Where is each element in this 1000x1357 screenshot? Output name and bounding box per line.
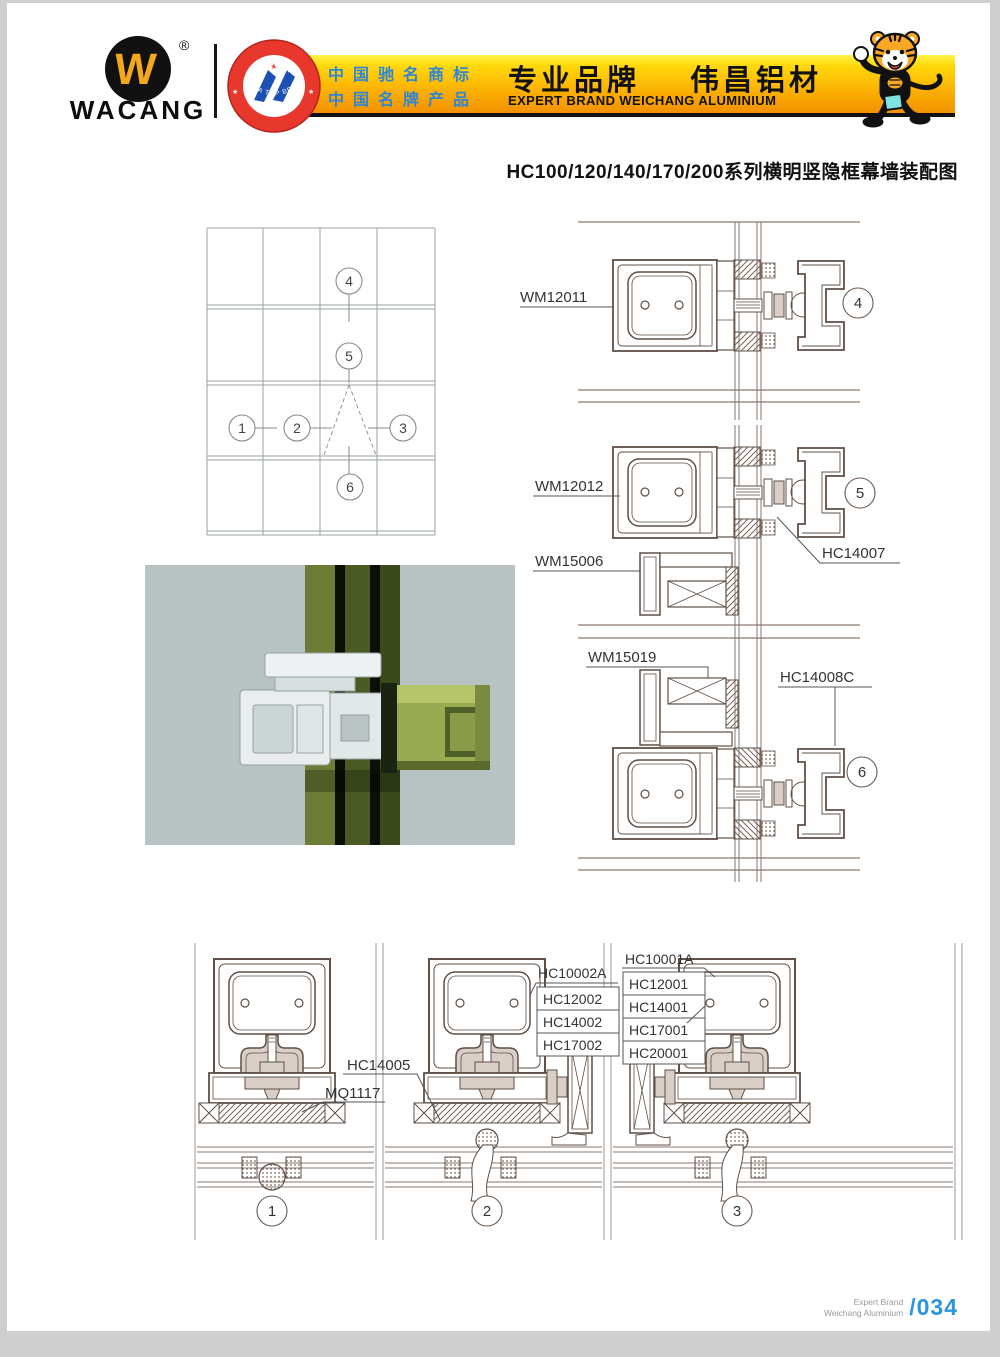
svg-text:HC14001: HC14001 bbox=[629, 999, 688, 1015]
badge-left-star-icon: ★ bbox=[232, 88, 238, 96]
bottom-detail-sections: MQ1117 HC14005 HC10002A HC12002 HC14002 … bbox=[185, 935, 975, 1247]
label-wm15006: WM15006 bbox=[535, 553, 603, 570]
detail-section-6: WM15019 HC14008C 6 bbox=[520, 620, 980, 885]
svg-text:HC12001: HC12001 bbox=[629, 976, 688, 992]
elevation-overview-diagram: 4 5 6 1 2 3 bbox=[205, 226, 440, 538]
badge-right-star-icon: ★ bbox=[308, 88, 314, 96]
svg-text:HC10002A: HC10002A bbox=[538, 965, 607, 981]
banner-line2: 中国名牌产品 bbox=[328, 86, 478, 110]
banner-line1: 中国驰名商标 bbox=[328, 61, 478, 85]
svg-text:HC20001: HC20001 bbox=[629, 1045, 688, 1061]
callout-3: 3 bbox=[733, 1203, 741, 1220]
footer-expert-line2: Weichang Aluminium bbox=[824, 1308, 903, 1319]
overview-callout-3: 3 bbox=[399, 420, 407, 436]
brand-wordmark: WACANG bbox=[70, 95, 206, 125]
china-top-brand-badge: ★ 中国名牌 CHINA TOP BRAND ★ ★ bbox=[226, 38, 322, 134]
profile-3d-render bbox=[145, 565, 515, 845]
label-wm12011: WM12011 bbox=[520, 289, 587, 306]
page-edge-top bbox=[0, 0, 1000, 3]
svg-text:HC10001A: HC10001A bbox=[625, 951, 694, 967]
overview-callout-1: 1 bbox=[238, 420, 246, 436]
label-hc14005: HC14005 bbox=[347, 1057, 410, 1074]
label-mq1117: MQ1117 bbox=[325, 1085, 380, 1102]
footer-expert-line1: Expert Brand bbox=[824, 1297, 903, 1308]
callout-5: 5 bbox=[856, 485, 864, 502]
callout-2: 2 bbox=[483, 1203, 491, 1220]
label-wm12012: WM12012 bbox=[535, 478, 603, 495]
registered-mark: ® bbox=[179, 37, 190, 53]
label-wm15019: WM15019 bbox=[588, 649, 656, 666]
page-edge-bottom bbox=[0, 1331, 1000, 1357]
label-hc14008c: HC14008C bbox=[780, 669, 854, 686]
overview-callout-2: 2 bbox=[293, 420, 301, 436]
detail-section-4: WM12011 4 bbox=[520, 205, 980, 423]
overview-callout-5: 5 bbox=[345, 348, 353, 364]
drain-flap bbox=[471, 1145, 493, 1201]
wacang-logo: W ® WACANG bbox=[55, 30, 215, 125]
banner-subtitle: EXPERT BRAND WEICHANG ALUMINIUM bbox=[508, 93, 776, 108]
header-divider bbox=[214, 44, 217, 118]
page-title: HC100/120/140/170/200系列横明竖隐框幕墙装配图 bbox=[506, 157, 958, 184]
svg-text:HC12002: HC12002 bbox=[543, 991, 602, 1007]
label-stack-3: HC10001A HC12001 HC14001 HC17001 HC20001 bbox=[622, 951, 715, 1064]
overview-callout-6: 6 bbox=[346, 479, 354, 495]
svg-text:HC17002: HC17002 bbox=[543, 1037, 602, 1053]
callout-6: 6 bbox=[858, 764, 866, 781]
svg-text:HC14002: HC14002 bbox=[543, 1014, 602, 1030]
logo-w-glyph: W bbox=[113, 45, 158, 94]
overview-callout-4: 4 bbox=[345, 273, 353, 289]
label-stack-2: HC10002A HC12002 HC14002 HC17002 bbox=[530, 965, 619, 1056]
page-edge-left bbox=[0, 0, 7, 1357]
detail-section-5: WM12012 WM15006 HC14007 5 bbox=[520, 425, 980, 623]
catalog-page: W ® WACANG 中国驰名商标 中国名牌产品 专业品牌 伟昌铝材 EXPER… bbox=[0, 0, 1000, 1357]
page-footer: Expert Brand Weichang Aluminium /034 bbox=[824, 1294, 958, 1321]
tiger-mascot-icon bbox=[845, 25, 955, 130]
page-number: /034 bbox=[909, 1294, 958, 1321]
callout-1: 1 bbox=[268, 1203, 276, 1220]
page-edge-right bbox=[990, 0, 1000, 1357]
svg-text:HC17001: HC17001 bbox=[629, 1022, 688, 1038]
label-hc14007: HC14007 bbox=[822, 545, 885, 562]
callout-4: 4 bbox=[854, 295, 862, 312]
